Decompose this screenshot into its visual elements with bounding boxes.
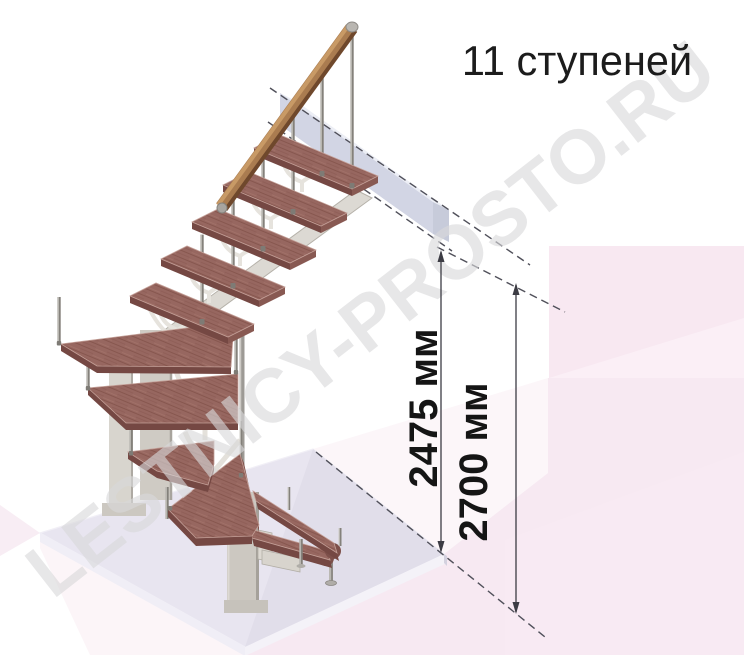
svg-text:2700 мм: 2700 мм	[452, 382, 496, 541]
svg-text:11 ступеней: 11 ступеней	[462, 37, 692, 84]
svg-text:2475 мм: 2475 мм	[402, 328, 446, 487]
